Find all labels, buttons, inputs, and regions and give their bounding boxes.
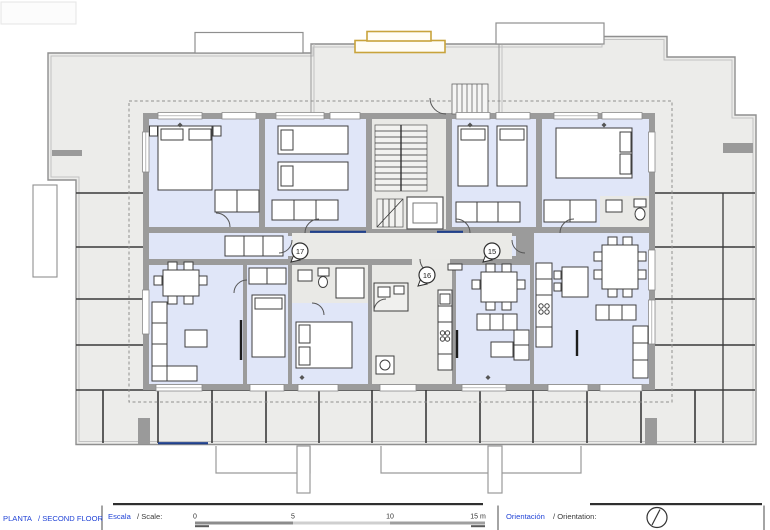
scale-tick-0: 0 xyxy=(193,514,197,521)
titleblock-rule-right xyxy=(590,503,762,505)
skylight-yellow xyxy=(355,32,445,53)
elevator xyxy=(407,197,443,229)
roof-access-stair xyxy=(452,84,488,114)
compass xyxy=(647,508,667,528)
door-opening-16 xyxy=(412,259,450,265)
unit-number: 15 xyxy=(488,247,496,256)
door-opening-17 xyxy=(288,236,292,256)
scale-label-es: Escala xyxy=(108,512,132,521)
scale-tick-5: 5 xyxy=(291,514,295,521)
floor-label-en: / SECOND FLOOR xyxy=(38,514,103,523)
roof-terrace-bump-left xyxy=(195,33,303,54)
floor-plan-svg: 17 16 15 PLANTA / SECOND FLOOR Escala / … xyxy=(0,0,770,530)
title-block: PLANTA / SECOND FLOOR Escala / Scale: 0 … xyxy=(3,503,764,530)
unit-number: 17 xyxy=(296,247,304,256)
scale-tick-10: 10 xyxy=(386,514,394,521)
foundation-brackets xyxy=(216,446,581,493)
orientation-label-es: Orientación xyxy=(506,512,545,521)
apartment-block: 17 16 15 xyxy=(143,84,656,443)
floor-plan-sheet: 17 16 15 PLANTA / SECOND FLOOR Escala / … xyxy=(0,0,770,530)
roof-corner-slab xyxy=(1,2,76,24)
left-balcony-slab xyxy=(33,185,57,277)
scale-label-en: / Scale: xyxy=(137,512,162,521)
scale-bar: 0 5 10 15 m xyxy=(193,514,486,528)
corridor xyxy=(292,233,512,259)
floor-label-es: PLANTA xyxy=(3,514,33,523)
roof-terrace-bump-right xyxy=(496,23,604,44)
scale-tick-15: 15 m xyxy=(470,514,486,521)
door-opening-15 xyxy=(512,236,516,256)
unit-number: 16 xyxy=(423,271,431,280)
compass-circle xyxy=(647,508,667,528)
lower-stair xyxy=(377,199,403,227)
titleblock-rule-left xyxy=(113,503,483,505)
orientation-label-en: / Orientation: xyxy=(553,512,596,521)
main-stair xyxy=(375,125,427,191)
